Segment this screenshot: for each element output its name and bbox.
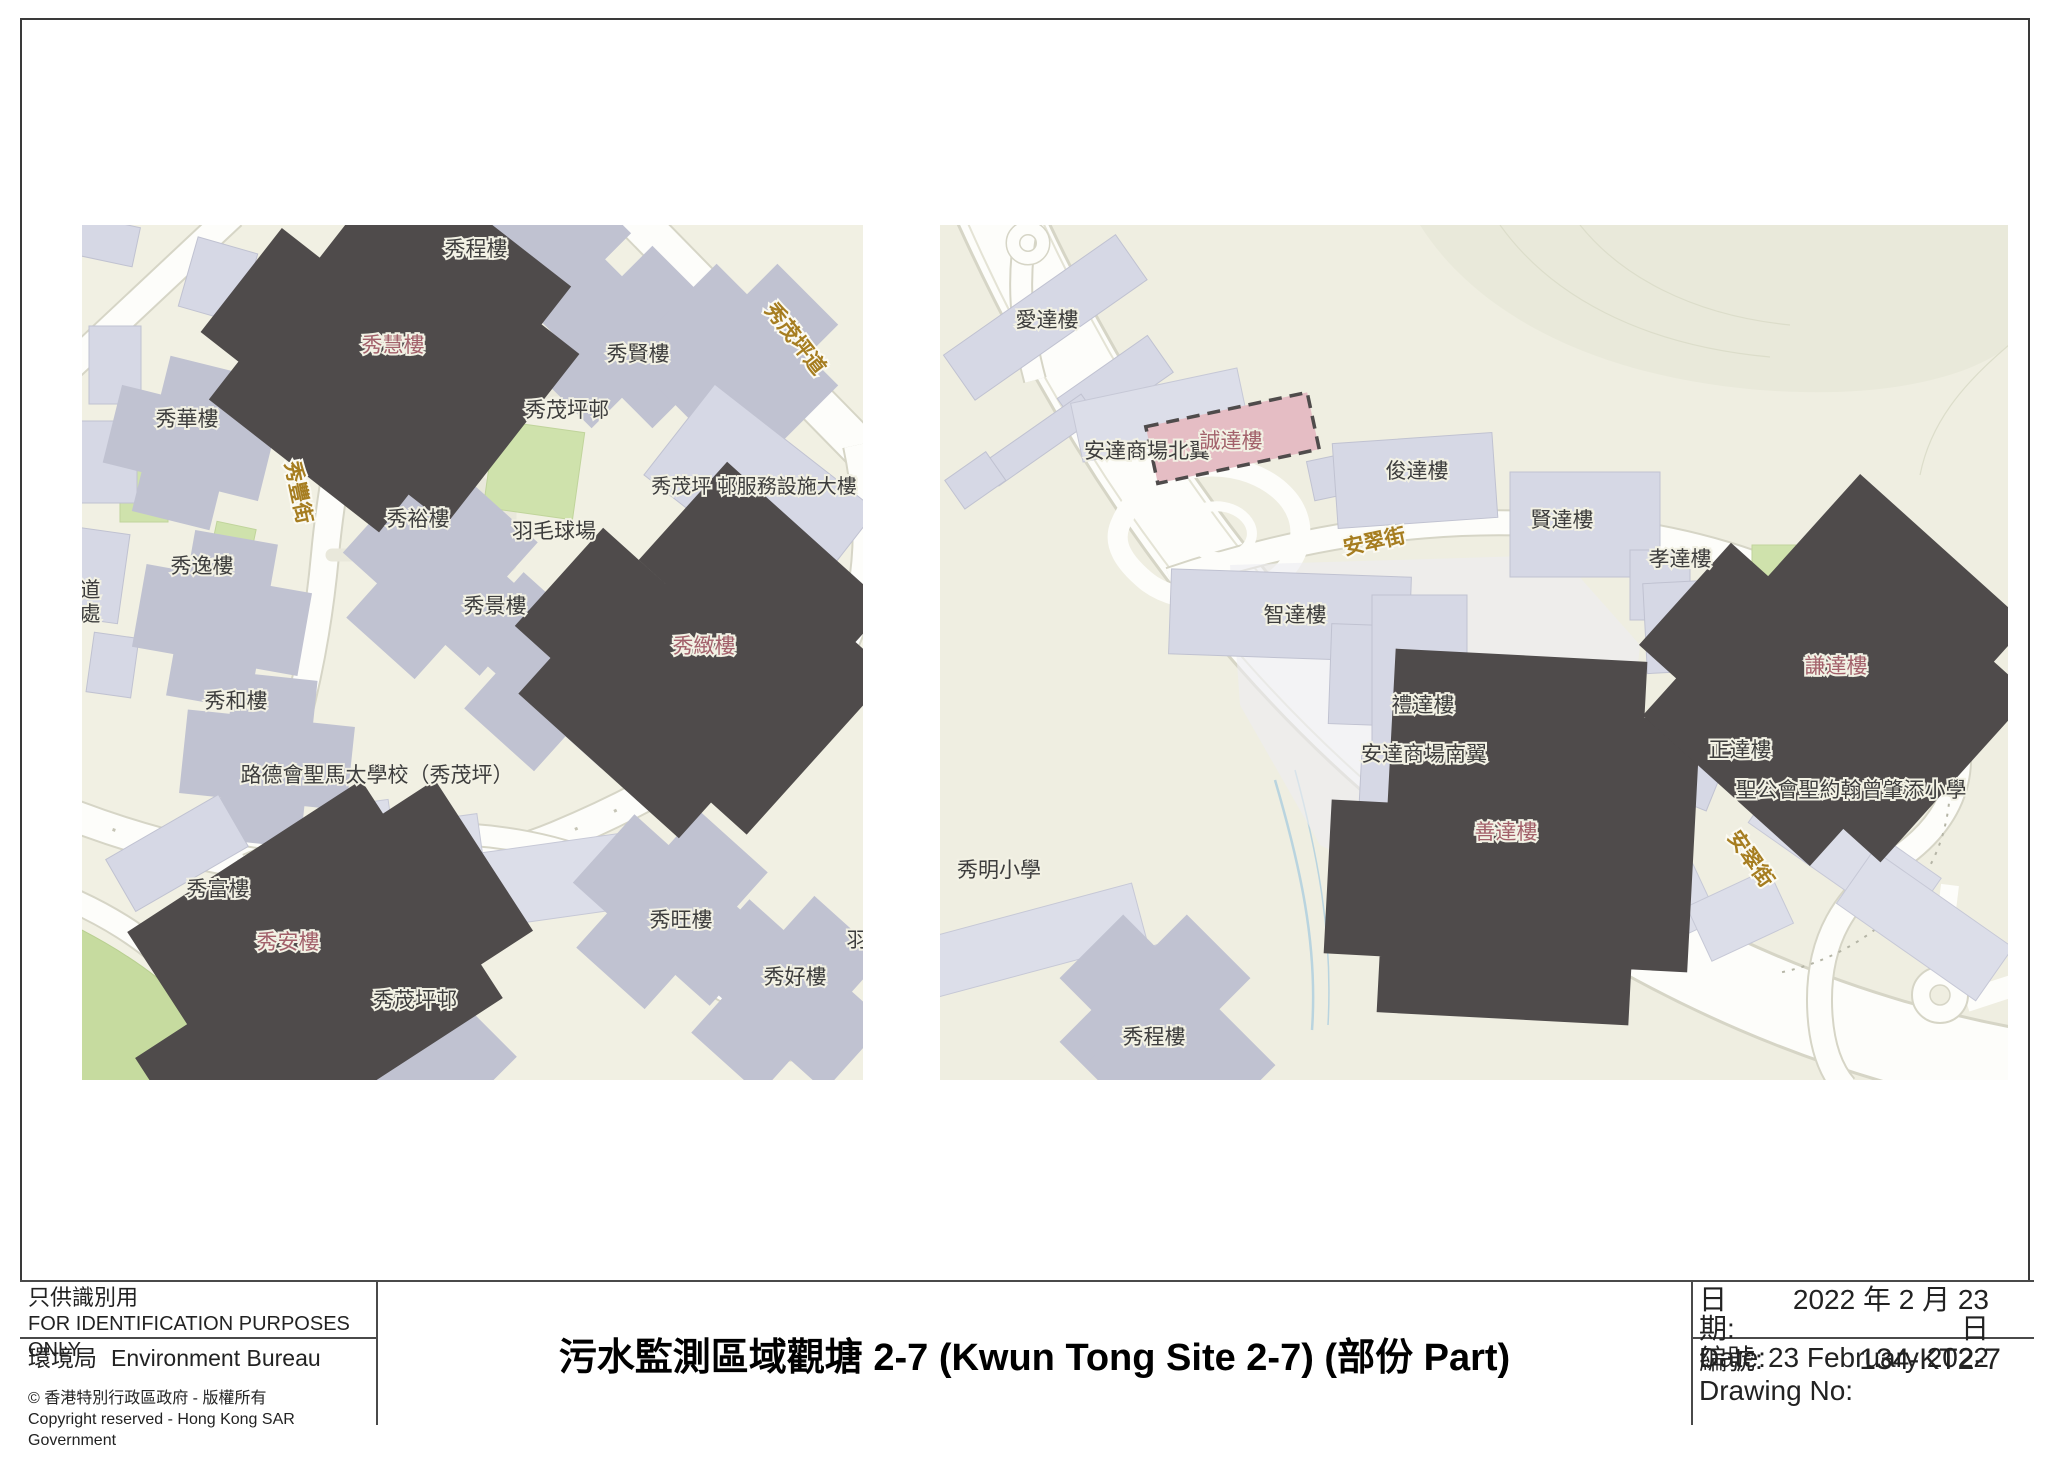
edge-label: 羽 <box>847 929 864 952</box>
identification-cell: 只供識別用 FOR IDENTIFICATION PURPOSES ONLY <box>20 1282 376 1339</box>
map-panel-sau-mau-ping: 秀程樓 秀慧樓 秀賢樓 秀茂坪邨 秀華樓 秀茂坪 邨服務設施大樓 秀裕樓 羽毛球… <box>82 225 863 1080</box>
facility-label: 羽毛球場 <box>512 520 596 543</box>
building-label-highlighted: 秀安樓 <box>257 931 320 954</box>
drawing-no-value: 134-KT2-7 <box>1859 1344 2001 1375</box>
school-label: 秀明小學 <box>957 859 1041 882</box>
building-label: 秀和樓 <box>205 690 268 713</box>
building-label: 秀裕樓 <box>387 508 450 531</box>
title-block: 只供識別用 FOR IDENTIFICATION PURPOSES ONLY 環… <box>20 1280 2034 1425</box>
building-label-highlighted: 秀緻樓 <box>673 635 736 658</box>
building-label: 安達商場南翼 <box>1361 743 1487 766</box>
map-on-tat: 愛達樓 安達商場北翼 誠達樓 俊達樓 賢達樓 孝達樓 智達樓 禮達樓 安達商場南… <box>940 225 2008 1080</box>
copyright-lines: © 香港特別行政區政府 - 版權所有 Copyright reserved - … <box>28 1388 376 1451</box>
building-label: 秀賢樓 <box>607 343 670 366</box>
drawing-no-cell: 編號: 134-KT2-7 Drawing No: <box>1693 1339 2034 1406</box>
building-label: 愛達樓 <box>1016 309 1079 332</box>
estate-label: 秀茂坪邨 <box>525 399 609 422</box>
building-label: 秀旺樓 <box>650 909 713 932</box>
building-label: 秀富樓 <box>187 878 250 901</box>
drawing-sheet: 秀程樓 秀慧樓 秀賢樓 秀茂坪邨 秀華樓 秀茂坪 邨服務設施大樓 秀裕樓 羽毛球… <box>0 0 2055 1459</box>
building-label-highlighted: 誠達樓 <box>1200 430 1263 453</box>
building-label: 賢達樓 <box>1531 509 1594 532</box>
building-label: 秀茂坪 邨服務設施大樓 <box>651 475 857 498</box>
building-label: 秀程樓 <box>1123 1026 1186 1049</box>
building-label: 禮達樓 <box>1392 694 1455 717</box>
building-label: 俊達樓 <box>1386 460 1449 483</box>
bureau-zh: 環境局 <box>28 1345 97 1371</box>
drawing-no-label-en: Drawing No: <box>1699 1375 2034 1406</box>
date-label-zh: 日期: <box>1699 1285 1762 1343</box>
edge-label: 處 <box>82 603 101 626</box>
building-label-highlighted: 謙達樓 <box>1805 655 1868 678</box>
school-label: 聖公會聖約翰曾肇添小學 <box>1736 779 1967 802</box>
building-label: 秀景樓 <box>464 595 527 618</box>
estate-label: 秀茂坪邨 <box>373 989 457 1012</box>
map-sau-mau-ping: 秀程樓 秀慧樓 秀賢樓 秀茂坪邨 秀華樓 秀茂坪 邨服務設施大樓 秀裕樓 羽毛球… <box>82 225 863 1080</box>
date-drawing-block: 日期: 2022 年 2 月 23 日 Date: 23 February 20… <box>1691 1282 2034 1425</box>
date-cell: 日期: 2022 年 2 月 23 日 Date: 23 February 20… <box>1693 1282 2034 1339</box>
bureau-en: Environment Bureau <box>111 1345 321 1371</box>
map-panel-on-tat: 愛達樓 安達商場北翼 誠達樓 俊達樓 賢達樓 孝達樓 智達樓 禮達樓 安達商場南… <box>940 225 2008 1080</box>
school-label: 路德會聖馬太學校（秀茂坪） <box>241 764 514 787</box>
sheet-title: 污水監測區域觀塘 2-7 (Kwun Tong Site 2-7) (部份 Pa… <box>559 1326 1510 1381</box>
drawing-no-label-zh: 編號: <box>1699 1344 1763 1375</box>
building-label-highlighted: 善達樓 <box>1475 821 1538 844</box>
date-value-zh: 2022 年 2 月 23 日 <box>1762 1285 1989 1343</box>
building-label: 安達商場北翼 <box>1084 440 1210 463</box>
copyright-en: Copyright reserved - Hong Kong SAR Gover… <box>28 1409 376 1451</box>
building-label: 正達樓 <box>1709 739 1772 762</box>
identification-block: 只供識別用 FOR IDENTIFICATION PURPOSES ONLY 環… <box>20 1282 378 1425</box>
edge-label: 道 <box>82 579 101 602</box>
identification-zh: 只供識別用 <box>28 1285 376 1311</box>
building-label: 秀程樓 <box>445 238 508 261</box>
building-label: 孝達樓 <box>1649 548 1712 571</box>
building-label: 智達樓 <box>1264 604 1327 627</box>
bureau-line: 環境局Environment Bureau <box>28 1344 376 1372</box>
building-label: 秀華樓 <box>156 408 219 431</box>
copyright-zh: © 香港特別行政區政府 - 版權所有 <box>28 1388 376 1409</box>
building-label-highlighted: 秀慧樓 <box>362 334 425 357</box>
building-label: 秀逸樓 <box>171 555 234 578</box>
bureau-cell: 環境局Environment Bureau © 香港特別行政區政府 - 版權所有… <box>20 1339 376 1451</box>
title-cell: 污水監測區域觀塘 2-7 (Kwun Tong Site 2-7) (部份 Pa… <box>378 1282 1691 1425</box>
building-label: 秀好樓 <box>764 966 827 989</box>
